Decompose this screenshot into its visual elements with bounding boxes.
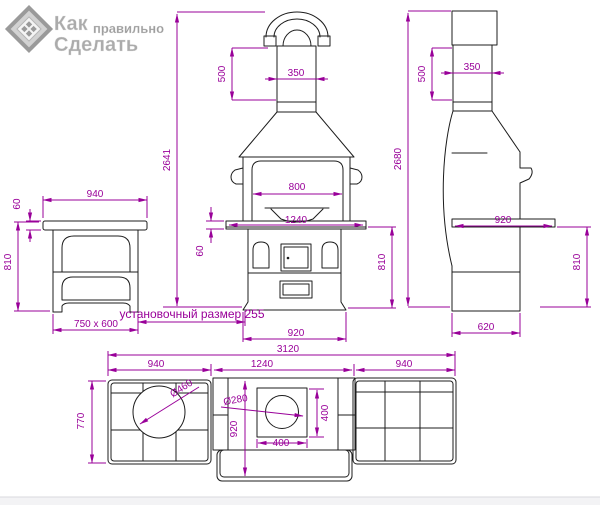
dim-front-counter-thickness: 60 — [195, 245, 206, 257]
logo-word-3: Сделать — [54, 34, 138, 56]
logo-diamond-icon — [8, 8, 50, 50]
dim-plan-center-width: 1240 — [251, 359, 274, 370]
dim-table-top-width: 940 — [87, 189, 104, 200]
dim-side-shelf-width: 920 — [495, 215, 512, 226]
dim-install-note: установочный размер 255 — [119, 307, 264, 321]
bbq-blueprint-page: Как правильно Сделать — [0, 0, 600, 505]
dim-plan-center-depth: 920 — [229, 420, 240, 437]
page-bottom-edge — [0, 497, 600, 505]
dim-plan-right-width: 940 — [396, 359, 413, 370]
dim-front-opening-width: 800 — [289, 182, 306, 193]
logo-word-1: Как — [54, 13, 89, 35]
dim-table-base-size: 750 x 600 — [74, 319, 118, 330]
side-view-outline — [443, 11, 555, 311]
dim-plan-flue-square-width: 400 — [273, 438, 290, 449]
dim-table-top-thickness: 60 — [12, 198, 23, 210]
dim-plan-left-width: 940 — [148, 359, 165, 370]
dim-front-body-height: 810 — [377, 253, 388, 270]
dim-side-body-height: 810 — [572, 253, 583, 270]
dim-front-base-width: 920 — [288, 328, 305, 339]
dim-front-counter-width: 1240 — [285, 215, 308, 226]
front-view-dimensions: 2641 500 350 800 1240 60 810 920 установ… — [119, 12, 396, 342]
dim-plan-left-depth: 770 — [76, 412, 87, 429]
dim-front-total-height: 2641 — [162, 148, 173, 171]
dim-plan-total-width: 3120 — [277, 344, 300, 355]
technical-drawing-canvas: Как правильно Сделать — [0, 0, 600, 505]
dim-plan-grill-hole-dia: Ø460 — [168, 377, 195, 400]
dim-side-chimney-height: 500 — [417, 65, 428, 82]
dim-front-chimney-height: 500 — [217, 65, 228, 82]
plan-view-outline — [108, 378, 456, 481]
dim-side-chimney-width: 350 — [464, 62, 481, 73]
dim-table-height: 810 — [3, 253, 14, 270]
front-view-outline — [226, 12, 366, 310]
dim-front-chimney-width: 350 — [288, 68, 305, 79]
table-view-outline — [43, 221, 147, 312]
dim-plan-flue-square-height: 400 — [320, 404, 331, 421]
dim-side-base-depth: 620 — [478, 322, 495, 333]
dim-side-total-height: 2680 — [393, 147, 404, 170]
logo: Как правильно Сделать — [8, 8, 164, 56]
